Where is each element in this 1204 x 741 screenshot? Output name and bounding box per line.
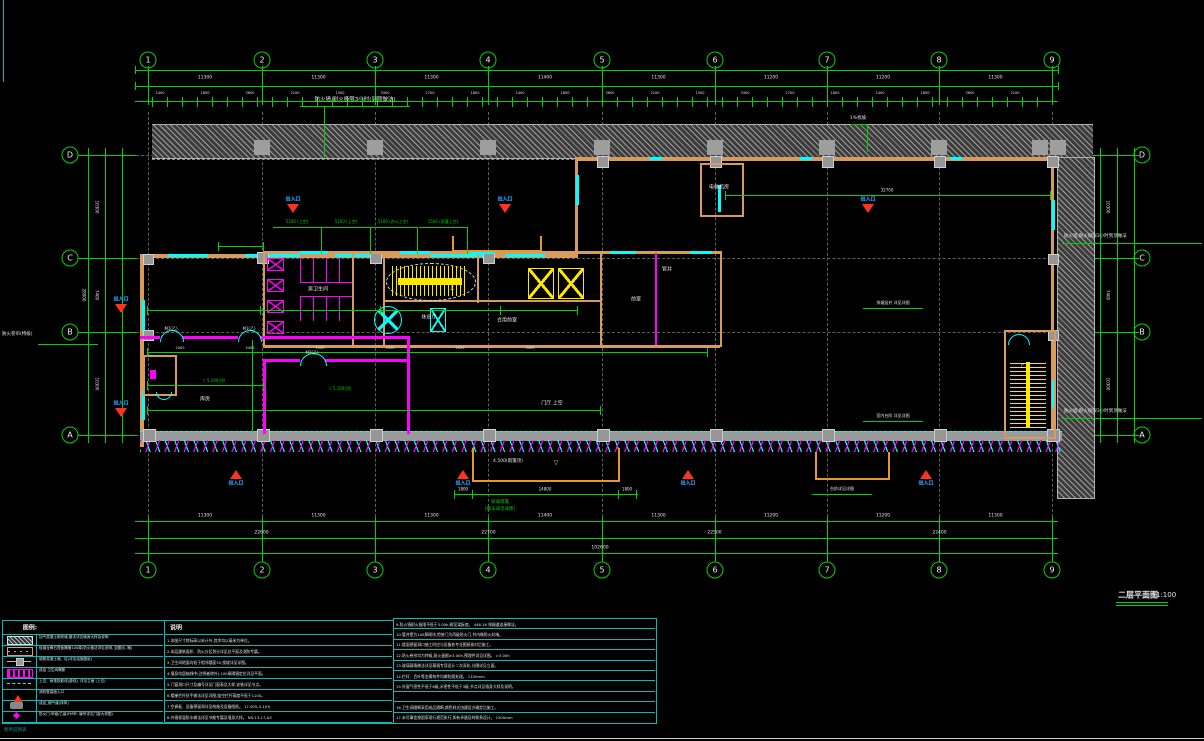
hatch-magenta-symbol	[7, 669, 33, 678]
window	[505, 254, 545, 257]
leader-label: 玻璃雨篷	[491, 499, 509, 505]
level-symbol: ▽	[554, 460, 559, 467]
dim-tick	[375, 517, 376, 525]
dim-tick	[375, 534, 376, 542]
legend-desc: 上空、雨篷投影线(虚线), 详见立面 (上空)	[39, 679, 161, 689]
dim-text: 1800	[471, 91, 480, 95]
note-line: 10.管井壁为100厚砌块,检修门为丙级防火门,井内做防火封堵。	[396, 630, 653, 639]
level-mark: ▽ 5.100(顶)	[203, 378, 226, 384]
window	[400, 251, 430, 254]
dim-line	[147, 352, 707, 353]
dim-tick	[1097, 258, 1105, 259]
grid-bubble: 9	[1044, 562, 1061, 579]
plan-line	[164, 722, 392, 723]
hatch-band-top	[152, 124, 1093, 159]
dim-tick	[827, 82, 828, 90]
dim-tick	[707, 97, 708, 107]
dim-text: 14800	[539, 487, 552, 492]
dim-line	[105, 148, 106, 443]
dim-tick	[1097, 155, 1105, 156]
legend-desc: 钢筋混凝土墙、柱(详见结施图纸)	[39, 657, 161, 667]
dim-tick	[1058, 66, 1059, 74]
dim-tick	[482, 97, 483, 107]
plan-line	[164, 689, 392, 690]
door-arc	[156, 392, 172, 400]
canopy	[618, 448, 620, 482]
grid-line	[488, 112, 489, 542]
note-line: 17.未尽事宜按国家现行规范执行,如有矛盾及时联系设计。 1500mm	[396, 713, 653, 722]
wall	[575, 157, 1058, 161]
grid-bubble: 4	[480, 562, 497, 579]
entrance-marker-arrow	[457, 470, 469, 479]
plan-line	[369, 227, 417, 228]
upper-space-label: 5100 (办公上空)	[378, 219, 409, 225]
dim-tick	[1114, 258, 1122, 259]
dim-tick	[715, 66, 716, 74]
dim-tick	[939, 82, 940, 90]
dim-text: 1500	[696, 91, 705, 95]
level-mark: 4.500(雨篷顶)	[493, 458, 523, 464]
dim-text: 2700	[426, 91, 435, 95]
dim-tick	[1007, 97, 1008, 107]
stair-direction: 上	[1019, 363, 1024, 370]
dim-text: 11300	[198, 514, 212, 519]
dim-line	[135, 553, 1058, 554]
dash-cyan-symbol	[7, 683, 31, 684]
partition	[140, 336, 160, 339]
dim-text: 3600	[606, 91, 615, 95]
plan-line	[143, 429, 156, 442]
dim-text: 1800	[622, 487, 632, 492]
dim-tick	[488, 517, 489, 525]
legend-desc: 轻钢龙骨石膏板隔墙100厚(防火做法详见说明, 如图示, 略)	[39, 646, 161, 656]
canopy	[472, 480, 620, 482]
upper-space-label: 5100 (上空)	[335, 219, 358, 225]
entrance-marker-label: 出入口	[113, 296, 128, 303]
wc-fixture	[267, 258, 284, 271]
dim-tick	[212, 97, 213, 107]
room-label: 男卫生间	[308, 286, 328, 293]
dim-line	[1100, 148, 1101, 443]
plan-line	[1062, 418, 1202, 419]
wc-fixture	[267, 279, 284, 292]
dim-tick	[218, 242, 219, 251]
dim-text: 3600	[966, 91, 975, 95]
dim-text: 3300	[386, 346, 395, 350]
plan-line	[2, 722, 163, 723]
door-label: M2(乙)	[305, 350, 318, 356]
wall-tan-symbol	[7, 647, 33, 656]
dim-tick	[1114, 435, 1122, 436]
legend-desc: 成品_烟气道(排风)	[39, 701, 161, 711]
plan-line	[164, 700, 392, 701]
dim-line	[135, 70, 1058, 71]
plan-line	[597, 156, 609, 168]
dim-text: 1800	[831, 91, 840, 95]
entrance-marker-arrow	[287, 204, 299, 213]
dim-text: 11300	[651, 76, 665, 81]
dim-tick	[527, 97, 528, 107]
dim-tick	[600, 406, 601, 415]
plan-line	[934, 429, 947, 442]
dim-text: 11300	[311, 76, 325, 81]
note-line: 2.本层建筑面积、防火分区划分详见总平面及消防专篇。	[167, 647, 390, 656]
dim-text: 1800	[458, 487, 468, 492]
column-block	[707, 140, 723, 155]
dim-tick	[722, 97, 723, 107]
dim-tick	[1037, 97, 1038, 107]
plan-line	[164, 656, 392, 657]
dim-tick	[939, 517, 940, 525]
note-line: 13.玻璃幕墙做法详见幕墙专项设计二次深化,分隔详见立面。	[396, 661, 653, 670]
dim-tick	[242, 97, 243, 107]
plan-line	[164, 678, 392, 679]
column-block	[254, 140, 270, 155]
dim-tick	[692, 97, 693, 107]
grid-line	[96, 258, 1136, 259]
dim-tick	[1131, 258, 1139, 259]
dim-tick	[647, 97, 648, 107]
dim-text: 11200	[876, 514, 890, 519]
dim-tick	[572, 97, 573, 107]
dim-tick	[1052, 97, 1053, 105]
window	[1052, 200, 1055, 230]
dim-text: 32700	[881, 188, 894, 193]
entrance-marker-arrow	[862, 204, 874, 213]
note-line: 6.楼梯栏杆扶手做法详见详图,临空栏杆高度不低于1100。	[167, 691, 390, 700]
dim-tick	[452, 97, 453, 107]
dim-tick	[147, 306, 148, 315]
dim-text: 7400	[95, 290, 100, 300]
wall	[575, 157, 578, 257]
dim-tick	[102, 435, 110, 436]
room-label: 前室	[631, 296, 641, 303]
grid-bubble: 1	[140, 562, 157, 579]
dim-tick	[662, 97, 663, 107]
plan-line	[143, 254, 154, 265]
accessible-wc	[143, 355, 177, 396]
dim-tick	[500, 306, 501, 315]
grid-bubble: D	[62, 147, 79, 164]
partition	[182, 336, 238, 339]
dim-tick	[148, 82, 149, 90]
entrance-marker-label: 出入口	[680, 480, 695, 487]
dim-tick	[737, 97, 738, 107]
dim-text: 2400	[516, 91, 525, 95]
dim-text: 11300	[651, 514, 665, 519]
dim-tick	[85, 258, 93, 259]
legend-desc: 成品 卫生间隔断	[39, 668, 161, 678]
window	[950, 157, 962, 160]
note-line: 9.防火墙耐火极限不低于3.00h,砌至梁板底。 446.16 排烟道连接做法。	[396, 620, 653, 629]
grid-line	[602, 112, 603, 542]
partition	[263, 359, 266, 434]
plan-line	[273, 227, 321, 228]
dim-tick	[902, 97, 903, 107]
core-wall	[600, 251, 602, 347]
window	[576, 175, 579, 205]
column-block	[480, 140, 496, 155]
dim-text: 11400	[538, 514, 552, 519]
dim-tick	[1131, 155, 1139, 156]
firewall-note: 防火墙,耐火极限3小时到顶做法	[1064, 233, 1127, 239]
grid-bubble: B	[62, 324, 79, 341]
dim-tick	[842, 97, 843, 107]
note-line: 7.空调板、设备预留洞详见结施及设备图纸。 17.005-3.1(H)	[167, 702, 390, 711]
dim-text: 1800	[201, 91, 210, 95]
note-line: 3.卫生间地面均低于相邻楼面30,找坡详见详图。	[167, 658, 390, 667]
grid-line	[324, 150, 325, 158]
dim-text: 2100	[1011, 91, 1020, 95]
dim-text: 2000	[456, 346, 465, 350]
note-line: 12.防火卷帘均为特级,耐火极限≥3.00h,预埋件详见详图。 >3.00h	[396, 651, 653, 660]
entrance-marker-label: 出入口	[228, 480, 243, 487]
room-label: 电梯机房	[709, 184, 729, 191]
dim-text: 22600	[254, 531, 268, 536]
dim-tick	[85, 332, 93, 333]
leader-label: (做法详见详图)	[485, 506, 516, 512]
window	[245, 254, 300, 257]
dim-text: 7400	[1106, 290, 1111, 300]
dim-tick	[437, 97, 438, 107]
dim-tick	[375, 66, 376, 74]
entrance-marker-label: 出入口	[455, 480, 470, 487]
plan-line	[322, 227, 370, 228]
entrance-marker-arrow	[230, 470, 242, 479]
plan-line	[1062, 243, 1202, 244]
column-block	[1050, 140, 1066, 155]
dim-tick	[857, 97, 858, 107]
dim-text: 2100	[291, 91, 300, 95]
dim-tick	[677, 97, 678, 107]
footer-note: 图例说明表	[4, 727, 27, 733]
entrance-marker-label: 出入口	[918, 480, 933, 487]
hatch-gray-symbol	[7, 636, 33, 645]
upper-space-label: 1500 (雨篷上空)	[428, 219, 459, 225]
dim-tick	[262, 97, 263, 105]
entrance-marker-label: 出入口	[113, 400, 128, 407]
dim-tick	[1097, 435, 1105, 436]
dim-tick	[827, 97, 828, 107]
dim-tick	[617, 97, 618, 107]
dim-text: 22500	[707, 531, 721, 536]
dim-text: 3600	[246, 91, 255, 95]
dim-text: 10300	[1106, 200, 1111, 213]
dim-tick	[812, 97, 813, 107]
room-label: 管井	[662, 266, 672, 273]
plan-line	[822, 429, 835, 442]
dim-tick	[577, 306, 578, 315]
dim-tick	[135, 82, 136, 90]
dim-tick	[148, 66, 149, 74]
plan-line	[597, 429, 610, 442]
level-mark: ▽ 5.100(顶)	[329, 386, 352, 392]
entrance-marker-arrow	[920, 470, 932, 479]
dim-tick	[167, 97, 168, 107]
dim-tick	[472, 490, 473, 499]
drawing-title: 二层平面图	[1118, 590, 1158, 601]
partition	[260, 336, 410, 339]
note-line: 8.外墙保温防水做法详见节能专篇及墙身大样。 NS:13-17-A3	[167, 713, 390, 722]
dim-line	[218, 246, 263, 247]
dim-tick	[932, 97, 933, 107]
dim-tick	[467, 97, 468, 107]
dim-tick	[262, 82, 263, 90]
dim-tick	[587, 97, 588, 107]
entrance-marker-arrow	[499, 204, 511, 213]
note-line: 4.墙身均居轴线中(注明者除外),100厚隔墙定位详见平面。	[167, 669, 390, 678]
dim-tick	[917, 97, 918, 107]
dim-tick	[1050, 191, 1051, 200]
dim-line	[88, 148, 89, 443]
title-underline	[1116, 602, 1168, 603]
wc-stalls	[300, 296, 352, 321]
dim-tick	[488, 97, 489, 105]
entrance-marker-arrow	[115, 408, 127, 417]
dim-tick	[752, 97, 753, 107]
partition	[655, 253, 657, 345]
dim-text: 102600	[591, 546, 608, 551]
dim-line	[147, 410, 600, 411]
dim-tick	[1052, 66, 1053, 74]
dim-tick	[380, 306, 381, 315]
upper-space-label: 5100 (上空)	[286, 219, 309, 225]
dim-text: 2400	[876, 91, 885, 95]
legend-desc: 加气混凝土砌块墙,做法详见墙身大样及说明	[39, 635, 161, 645]
grid-bubble: 7	[819, 562, 836, 579]
dim-tick	[1097, 332, 1105, 333]
stair-rail	[1026, 362, 1030, 428]
dim-tick	[422, 97, 423, 107]
dim-tick	[827, 534, 828, 542]
plan-line	[38, 344, 98, 345]
dim-tick	[148, 534, 149, 542]
plan-line	[934, 156, 946, 168]
entrance-marker-label: 出入口	[860, 196, 875, 203]
dim-tick	[715, 97, 716, 105]
dim-text: 11300	[988, 514, 1002, 519]
rc-column-glyph	[16, 658, 24, 666]
core-wall	[477, 251, 479, 303]
dim-tick	[947, 97, 948, 107]
dim-line	[147, 310, 577, 311]
grid-bubble: C	[62, 250, 79, 267]
leader-label: 室内台阶 详见详图	[876, 413, 909, 419]
core-wall	[263, 345, 720, 348]
dim-tick	[782, 97, 783, 107]
dim-text: 11200	[876, 76, 890, 81]
window	[142, 300, 145, 332]
dim-tick	[488, 66, 489, 74]
dim-tick	[227, 97, 228, 107]
column-block	[367, 140, 383, 155]
dim-tick	[262, 517, 263, 525]
dim-tick	[512, 97, 513, 107]
dim-text: 1800	[921, 91, 930, 95]
dim-tick	[272, 97, 273, 107]
room-label: 门厅 上空	[541, 400, 563, 407]
dim-text: 5400	[246, 346, 255, 350]
dim-text: 11200	[764, 514, 778, 519]
dim-tick	[715, 517, 716, 525]
canopy	[815, 452, 817, 480]
dim-tick	[602, 534, 603, 542]
dim-tick	[939, 66, 940, 74]
dim-tick	[119, 155, 127, 156]
plan-line	[300, 106, 410, 107]
entrance-marker-label: 出入口	[285, 196, 300, 203]
core-wall	[383, 300, 602, 302]
dim-line	[252, 340, 253, 432]
dim-tick	[119, 332, 127, 333]
dim-tick	[102, 332, 110, 333]
plan-line	[262, 521, 263, 562]
plan-line	[419, 227, 467, 228]
legend-desc: 防火门:甲级/乙级(FM甲- 编号详见门窗大样图)	[39, 712, 161, 722]
plan-line	[1048, 254, 1059, 265]
dim-tick	[887, 97, 888, 107]
dim-line	[1134, 148, 1135, 443]
window	[690, 251, 712, 254]
elevator	[558, 268, 584, 299]
stair-direction: 上	[449, 285, 454, 292]
partition	[325, 359, 407, 362]
hatch-band-right	[1057, 157, 1095, 499]
dim-tick	[602, 82, 603, 90]
dim-text: 10300	[95, 377, 100, 390]
dim-tick	[287, 97, 288, 107]
dim-line	[135, 86, 1058, 87]
dim-tick	[85, 435, 93, 436]
dim-text: 11300	[198, 76, 212, 81]
column-block	[931, 140, 947, 155]
dim-tick	[488, 82, 489, 90]
core-wall	[263, 251, 265, 347]
door-label: M1(乙)	[164, 326, 177, 332]
core-wall	[720, 251, 722, 347]
dim-tick	[262, 66, 263, 74]
dim-tick	[797, 97, 798, 107]
grid-bubble: 2	[254, 562, 271, 579]
dim-tick	[962, 97, 963, 107]
column-block	[819, 140, 835, 155]
dim-text: 11300	[424, 514, 438, 519]
dim-tick	[263, 242, 264, 251]
dim-text: 28000	[82, 289, 87, 302]
dim-line	[135, 538, 1058, 539]
plan-line	[863, 421, 923, 422]
dim-tick	[602, 66, 603, 74]
dim-text: 22700	[481, 531, 495, 536]
drawing-scale: 1:100	[1156, 591, 1176, 599]
room-label: 库房	[200, 396, 210, 403]
dim-tick	[602, 517, 603, 525]
firewall-note: 防火墙,耐火极限3小时到顶做法	[1064, 408, 1127, 414]
dim-tick	[147, 381, 148, 390]
canopy	[452, 250, 542, 252]
dim-tick	[1114, 332, 1122, 333]
plan-line	[483, 429, 496, 442]
room-label: 合用前室	[497, 317, 517, 324]
dim-tick	[119, 258, 127, 259]
dim-tick	[1131, 332, 1139, 333]
plan-line	[715, 521, 716, 562]
dim-text: 10300	[95, 200, 100, 213]
plan-line	[164, 645, 392, 646]
grid-line	[939, 112, 940, 542]
dim-tick	[454, 490, 455, 499]
dim-tick	[992, 97, 993, 107]
